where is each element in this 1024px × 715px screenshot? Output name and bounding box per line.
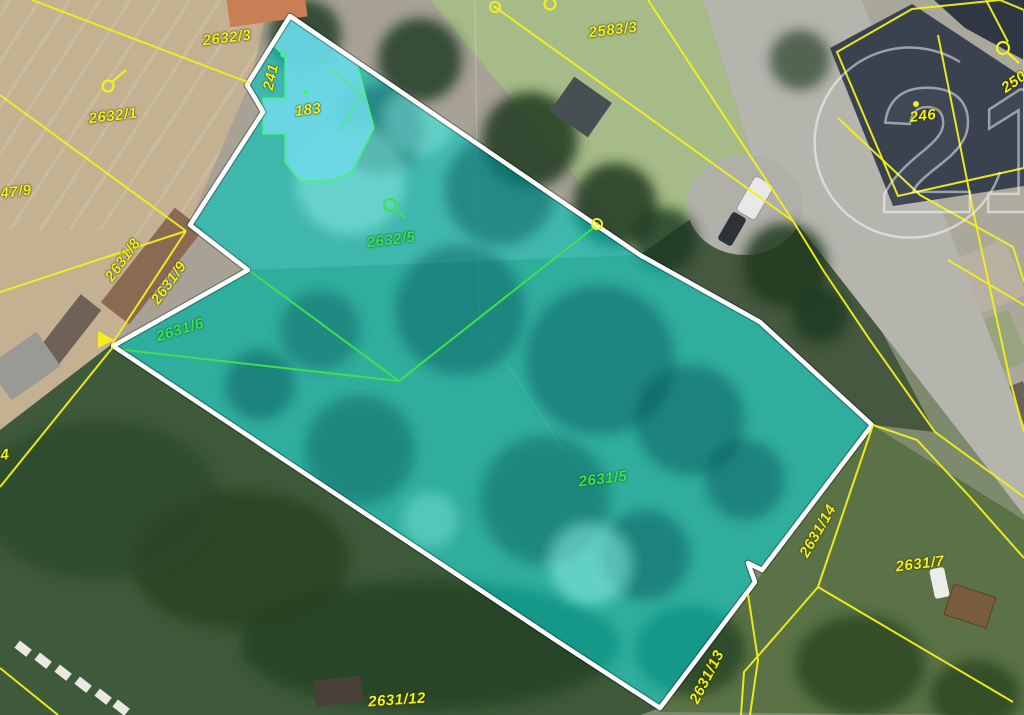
building-point-green: [280, 52, 285, 57]
shed-dark: [313, 676, 363, 707]
aerial-map-canvas: [0, 0, 1024, 715]
building-point-green: [302, 89, 307, 94]
cadastral-map: 21 2632/32583/32632/147/9241183246250263…: [0, 0, 1024, 715]
building-point-yellow: [913, 101, 919, 107]
